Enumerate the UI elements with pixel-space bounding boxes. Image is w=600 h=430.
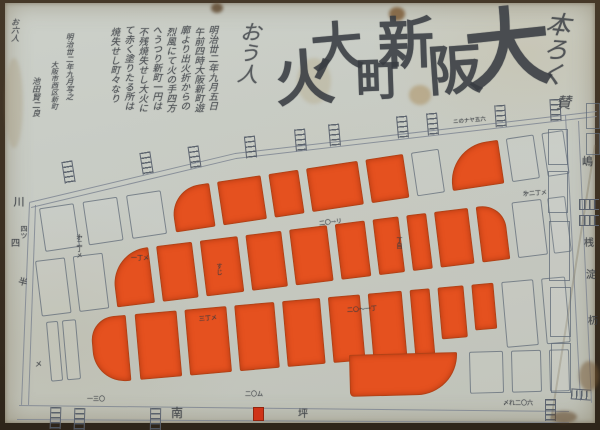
city-block bbox=[586, 103, 600, 129]
inscription-column: 明治丗二年九月五日 bbox=[206, 25, 216, 111]
title-char: 火 bbox=[273, 47, 337, 111]
street-label: すじ bbox=[215, 263, 221, 275]
paper-stain bbox=[211, 3, 223, 13]
street-label: 四ツ bbox=[20, 225, 27, 239]
burned-block bbox=[335, 221, 372, 280]
burned-block bbox=[368, 291, 408, 360]
city-block bbox=[550, 287, 571, 337]
bridge-icon bbox=[328, 124, 341, 147]
inscription-column: 廓より出火折からの bbox=[178, 25, 188, 111]
bridge-icon bbox=[188, 145, 202, 168]
burned-block bbox=[200, 236, 245, 296]
street-label: 㐧二丁メ bbox=[75, 234, 81, 258]
city-block bbox=[469, 351, 504, 394]
burned-block bbox=[349, 352, 458, 397]
map-line bbox=[28, 205, 36, 405]
bridge-icon bbox=[579, 215, 599, 226]
city-block bbox=[548, 171, 568, 213]
bridge-icon bbox=[61, 160, 75, 183]
calligraphy-flourish: 賛 bbox=[556, 95, 571, 112]
street-label: 一丁メ bbox=[131, 256, 149, 262]
burned-block bbox=[282, 298, 326, 367]
burned-block bbox=[245, 231, 288, 291]
inscription-column: お六人 bbox=[10, 18, 19, 42]
street-label: 嶋 bbox=[582, 156, 593, 167]
map-line bbox=[17, 419, 569, 423]
paper-stain bbox=[5, 58, 23, 148]
burned-block bbox=[135, 310, 183, 379]
paper-stain bbox=[579, 361, 599, 391]
city-block bbox=[73, 253, 110, 312]
burned-block bbox=[289, 225, 334, 285]
burned-block bbox=[234, 302, 280, 371]
burned-block bbox=[406, 213, 433, 271]
burned-block bbox=[306, 161, 364, 212]
bridge-icon bbox=[579, 199, 599, 210]
burned-block bbox=[170, 183, 216, 232]
bridge-icon bbox=[426, 113, 439, 136]
street-label: 坪 bbox=[298, 410, 308, 420]
inscription-column: 大阪市西区新町 bbox=[50, 61, 58, 110]
city-block bbox=[39, 203, 80, 252]
city-block bbox=[549, 221, 570, 281]
inscription-column: 明治丗二年九月写之 bbox=[65, 33, 73, 101]
burned-block bbox=[476, 203, 511, 262]
street-label: 四 bbox=[11, 240, 20, 249]
city-block bbox=[46, 321, 63, 382]
street-label: 淀 bbox=[586, 271, 596, 281]
city-block bbox=[548, 129, 568, 165]
burned-block bbox=[446, 140, 504, 191]
bridge-icon bbox=[494, 105, 507, 128]
street-label: 桟 bbox=[584, 239, 594, 249]
burned-block bbox=[328, 294, 366, 363]
inscription-column: 烈風にて火の手四方 bbox=[164, 27, 174, 113]
city-block bbox=[62, 319, 81, 380]
paper-stain bbox=[551, 411, 577, 423]
city-block bbox=[82, 197, 123, 246]
bridge-icon bbox=[139, 151, 153, 174]
street-label: 一三〇 bbox=[87, 397, 105, 403]
inscription-column: 焼失せし町々なり bbox=[108, 27, 118, 103]
street-label: 丁目 bbox=[395, 237, 401, 249]
burned-block bbox=[410, 288, 436, 355]
burned-block bbox=[90, 315, 132, 384]
map-paper: 南坪川四半嶋桟淀杤㐧二丁メ四ツ一丁メ二〇→リ二〇〜一丁三丁メ一三〇二〇ムニのナヤ… bbox=[5, 3, 595, 423]
red-bridge-icon bbox=[253, 407, 264, 421]
mounting-board: 大阪新町大火 南坪川四半嶋桟淀杤㐧二丁メ四ツ一丁メ二〇→リ二〇〜一丁三丁メ一三〇… bbox=[0, 0, 600, 430]
bridge-icon bbox=[294, 129, 307, 152]
bridge-icon bbox=[396, 116, 409, 139]
bridge-icon bbox=[244, 135, 257, 158]
burned-block bbox=[471, 283, 497, 331]
inscription-column: へうつり新町一円は bbox=[150, 25, 160, 111]
street-label: 〆れ二〇六 bbox=[503, 401, 533, 407]
bridge-icon bbox=[150, 408, 161, 430]
street-label: 川 bbox=[13, 196, 24, 207]
city-block bbox=[511, 199, 548, 258]
city-block bbox=[551, 343, 571, 393]
street-label: 二〇ム bbox=[245, 392, 263, 398]
city-block bbox=[501, 279, 539, 348]
bridge-icon bbox=[50, 407, 62, 429]
inscription-column: 池田賢二良 bbox=[31, 77, 40, 117]
street-label: メ bbox=[35, 361, 42, 368]
city-block bbox=[411, 149, 445, 197]
burned-block bbox=[156, 242, 199, 302]
city-block bbox=[35, 257, 72, 316]
street-label: 南 bbox=[171, 407, 183, 419]
city-block bbox=[511, 350, 542, 393]
inscription-column: て赤く塗りたる所は bbox=[122, 25, 132, 111]
burned-block bbox=[434, 208, 475, 268]
burned-block bbox=[217, 175, 267, 225]
inscription-column: 不残焼失せし大火に bbox=[136, 27, 146, 113]
city-block bbox=[126, 190, 167, 239]
burned-block bbox=[437, 285, 467, 339]
paper-stain bbox=[409, 85, 431, 105]
street-label: 杤 bbox=[588, 317, 598, 327]
city-block bbox=[586, 133, 600, 155]
burned-block bbox=[365, 154, 409, 203]
bridge-icon bbox=[74, 408, 86, 430]
street-label: 㐧二丁メ bbox=[523, 190, 547, 198]
map-line bbox=[19, 405, 569, 412]
inscription-column: 午前四時大阪新町遊 bbox=[192, 27, 202, 113]
calligraphy-flourish: おう人 bbox=[234, 20, 262, 85]
burned-block bbox=[268, 170, 304, 218]
city-block bbox=[506, 135, 540, 183]
